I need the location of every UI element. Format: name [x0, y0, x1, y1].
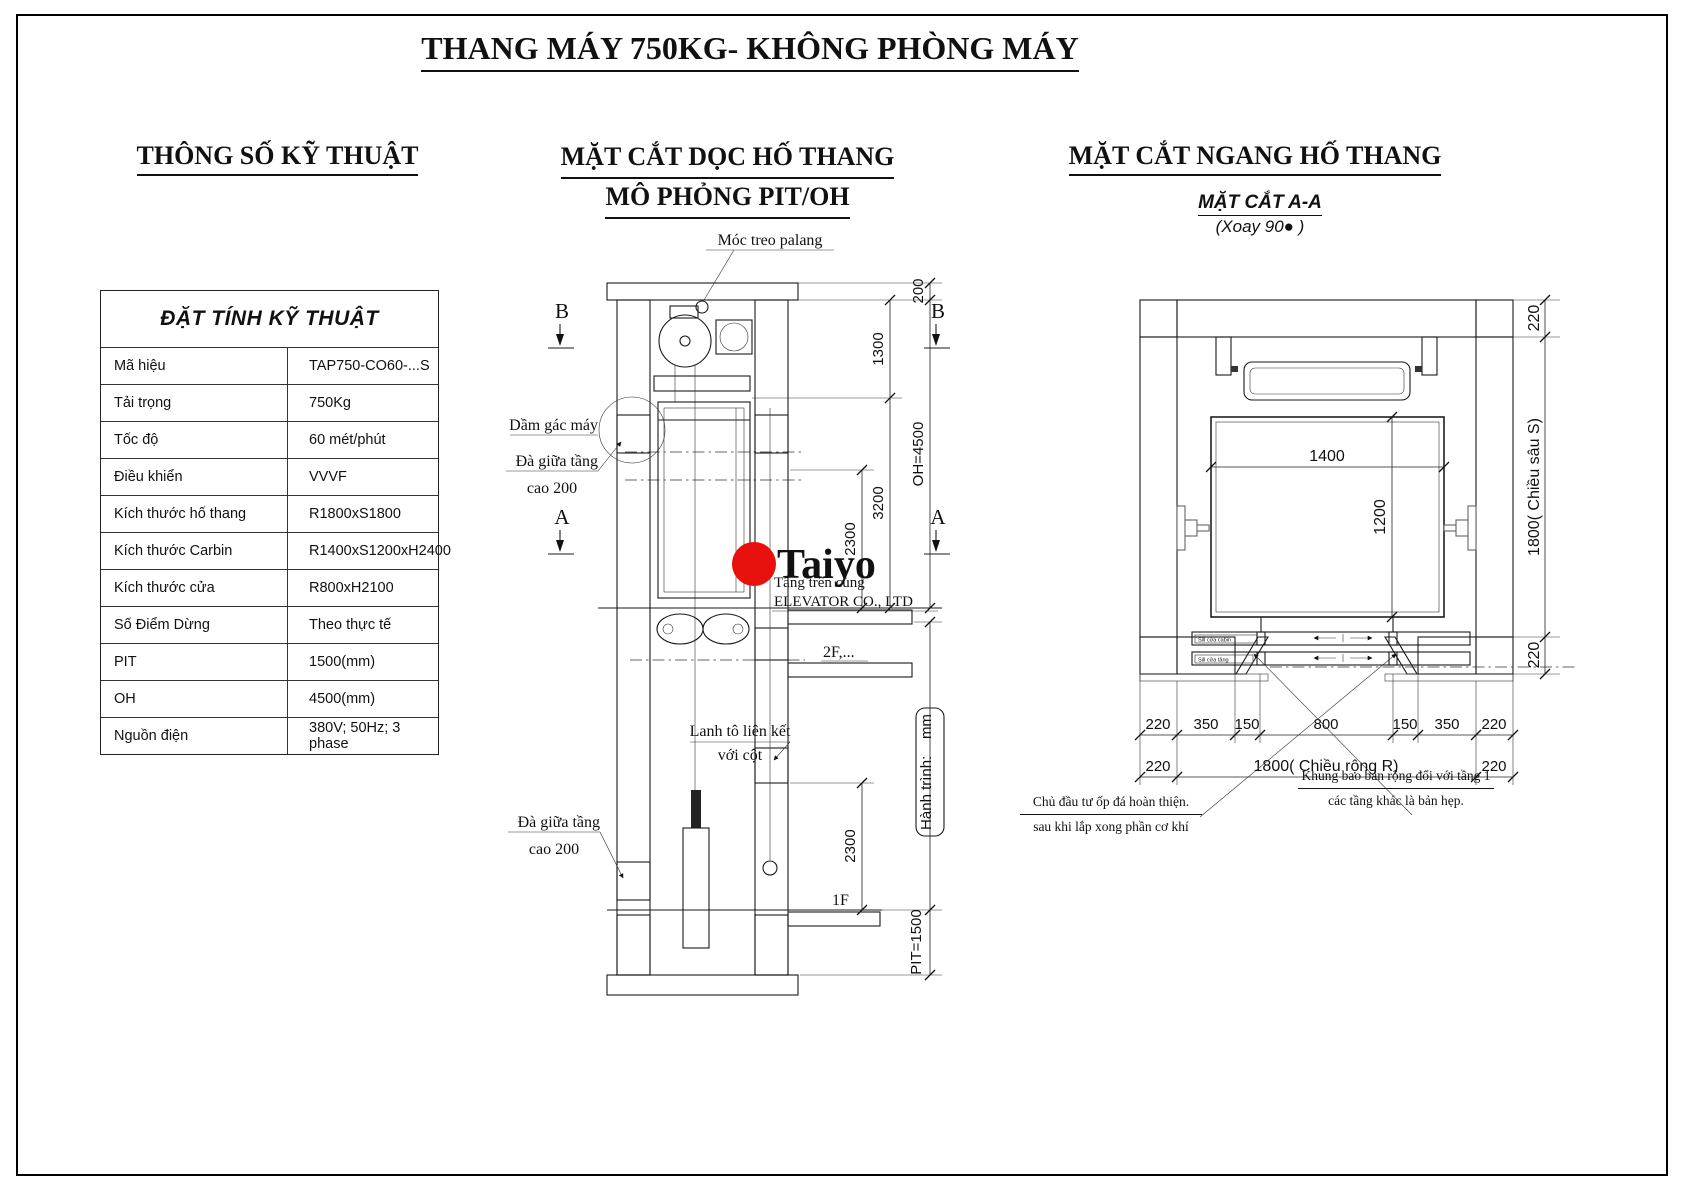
dim-wall-top: 220: [1526, 305, 1543, 332]
cabin-dims: 1400 1200: [1206, 412, 1449, 622]
dim-pit: PIT=1500: [908, 909, 925, 974]
logo-dot: [732, 542, 776, 586]
dim-oh: OH=4500: [910, 422, 927, 487]
dim-b6: 350: [1434, 716, 1459, 733]
hook-callout: Móc treo palang: [704, 232, 834, 300]
counterweight: [683, 408, 777, 948]
dim-b8: 220: [1145, 758, 1170, 775]
spec-table: ĐẶT TÍNH KỸ THUẬT Mã hiệuTAP750-CO60-...…: [100, 290, 439, 755]
dim-b3: 150: [1234, 716, 1259, 733]
table-row: Số Điểm DừngTheo thực tế: [101, 606, 438, 643]
table-row: Mã hiệuTAP750-CO60-...S: [101, 347, 438, 384]
section-marker-b-right: B: [924, 299, 950, 348]
mid-beam-callout-lower: Đà giữa tầng cao 200: [508, 814, 623, 878]
dim-b7: 220: [1481, 716, 1506, 733]
section-marker-b-left: B: [548, 299, 574, 348]
floor-2-label: 2F,...: [823, 644, 855, 661]
table-row: Tốc độ60 mét/phút: [101, 421, 438, 458]
rail-bracket-right: [1444, 506, 1476, 550]
floor-1-label: 1F: [832, 892, 849, 909]
plan-walls: [1140, 300, 1513, 681]
table-row: Nguồn điện380V; 50Hz; 3 phase: [101, 717, 438, 754]
section-heading: MẶT CẮT DỌC HỐ THANGMÔ PHỎNG PIT/OH: [530, 139, 925, 219]
dim-b2: 350: [1193, 716, 1218, 733]
svg-text:cao 200: cao 200: [527, 480, 577, 497]
taiyo-logo: Taiyo Tầng trên cùng ELEVATOR CO., LTD: [732, 542, 938, 611]
top-floor-label: Tầng trên cùng: [774, 575, 865, 591]
plan-subtitle-note: (Xoay 90● ): [1060, 217, 1460, 237]
dim-1400: 1400: [1309, 448, 1345, 465]
dimension-lines: 1300 3200 200 OH=4500 2300 2300 PIT=1500…: [752, 278, 944, 980]
stone-finish-right: [1385, 674, 1513, 681]
dim-b1: 220: [1145, 716, 1170, 733]
specs-heading: THÔNG SỐ KỸ THUẬT: [90, 141, 465, 176]
mid-beam-callout-upper: Đà giữa tầng cao 200: [506, 442, 621, 497]
dim-travel: Hành trình: mm: [918, 714, 935, 830]
svg-text:A: A: [930, 505, 946, 529]
table-row: Kích thước hố thangR1800xS1800: [101, 495, 438, 532]
table-row: Kích thước cửaR800xH2100: [101, 569, 438, 606]
plan-subtitle: MẶT CẮT A-A: [1060, 192, 1460, 216]
car-pulleys: [657, 614, 749, 644]
svg-text:Đà giữa tầng: Đà giữa tầng: [518, 814, 600, 831]
dim-depth: 1800( Chiều sâu S): [1526, 418, 1543, 556]
dim-3200: 3200: [870, 486, 887, 519]
dim-wall-bottom: 220: [1526, 642, 1543, 669]
section-marker-a-right: A: [924, 505, 950, 554]
svg-text:cao 200: cao 200: [529, 841, 579, 858]
door-jamb-right: [1385, 637, 1417, 674]
dim-1200: 1200: [1372, 499, 1389, 535]
vertical-section-drawing: B B A A Móc treo palang Dầm gác máy Đà g…: [490, 230, 990, 1040]
svg-text:Móc treo palang: Móc treo palang: [718, 232, 823, 249]
page-title: THANG MÁY 750KG- KHÔNG PHÒNG MÁY: [300, 30, 1200, 72]
svg-text:Lanh tô liên kết: Lanh tô liên kết: [690, 723, 791, 740]
dim-b5: 150: [1392, 716, 1417, 733]
governor-tensioner: [763, 861, 777, 875]
plan-view-drawing: 1400 1200 Sill cửa cabin Sill cửa tầng 2…: [1040, 280, 1600, 840]
svg-text:B: B: [931, 299, 945, 323]
table-row: PIT1500(mm): [101, 643, 438, 680]
logo-company: ELEVATOR CO., LTD: [774, 594, 913, 610]
dim-200: 200: [910, 278, 927, 303]
plan-right-dims: 220 1800( Chiều sâu S) 220: [1513, 295, 1560, 679]
svg-text:B: B: [555, 299, 569, 323]
dim-2300-lower: 2300: [842, 829, 859, 862]
section-marker-a-left: A: [548, 505, 574, 554]
note-left: Chủ đầu tư ốp đá hoàn thiện. sau khi lắp…: [1020, 792, 1202, 838]
dim-1300: 1300: [870, 332, 887, 365]
note-right: Khung bao bản rộng đổi với tầng 1 các tầ…: [1298, 766, 1494, 812]
lintel-callout: Lanh tô liên kết với cột: [690, 723, 791, 764]
door-jamb-left: [1236, 637, 1268, 674]
svg-text:Dầm gác máy: Dầm gác máy: [509, 417, 598, 434]
table-row: OH4500(mm): [101, 680, 438, 717]
machine-beam-callout: Dầm gác máy: [509, 417, 598, 435]
sill-landing-label: Sill cửa tầng: [1198, 657, 1229, 664]
rail-bracket-left: [1177, 506, 1209, 550]
plan-heading: MẶT CẮT NGANG HỐ THANG: [1055, 141, 1455, 176]
spec-table-title: ĐẶT TÍNH KỸ THUẬT: [101, 291, 438, 347]
sill-cabin-label: Sill cửa cabin: [1198, 637, 1231, 644]
svg-text:Đà giữa tầng: Đà giữa tầng: [516, 453, 598, 470]
svg-text:A: A: [554, 505, 570, 529]
table-row: Điều khiểnVVVF: [101, 458, 438, 495]
shaft-walls: [607, 283, 798, 995]
table-row: Tải trọng750Kg: [101, 384, 438, 421]
stone-finish-left: [1140, 674, 1268, 681]
counterweight-plan: [1216, 337, 1437, 400]
svg-text:với cột: với cột: [718, 747, 763, 764]
table-row: Kích thước CarbinR1400xS1200xH2400: [101, 532, 438, 569]
